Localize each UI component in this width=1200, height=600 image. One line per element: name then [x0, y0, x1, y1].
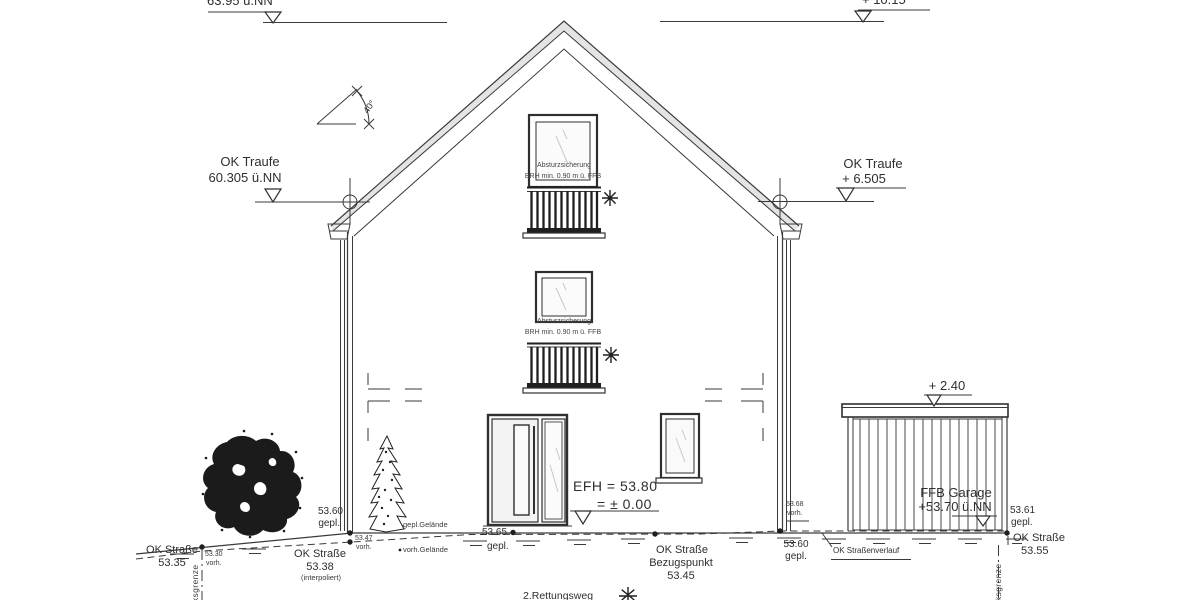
- guard-note-upper-line1: Absturzsicherung: [537, 162, 591, 170]
- street-left-exist-suffix: vorh.: [206, 560, 222, 568]
- property-boundary-label-right: Grundstücksgrenze: [994, 563, 1003, 600]
- street-left-exist-value: 53.30: [205, 551, 223, 559]
- ridge-level-left: 63.95 ü.NN: [207, 0, 273, 8]
- ridge-level-right: + 10.15: [862, 0, 906, 7]
- garage-right-planned-suffix: gepl.: [1011, 517, 1033, 528]
- rescue-route-star-middle: [603, 347, 619, 363]
- garage-ffb-line2: +53.70 ü.NN: [918, 500, 991, 514]
- street-ref-value: 53.45: [667, 570, 695, 582]
- entry-planned-suffix: gepl.: [487, 541, 509, 552]
- rescue-route-star-legend: [619, 587, 637, 600]
- trees: [202, 430, 406, 539]
- street-right-value: 53.55: [1021, 545, 1049, 557]
- level-triangle-eave-left: [265, 189, 281, 202]
- wall-left-planned-suffix: gepl.: [318, 518, 340, 529]
- rescue-route-star-upper: [602, 190, 618, 206]
- efh-zero-label: = ± 0.00: [597, 497, 652, 512]
- ground-lines: [136, 521, 1026, 600]
- entry-door: [483, 415, 572, 526]
- guard-note-middle-line1: Absturzsicherung: [537, 318, 591, 326]
- guard-note-upper-line2: BRH min. 0.90 m ü. FFB: [525, 173, 601, 181]
- street-ref-line2: Bezugspunkt: [649, 557, 713, 569]
- ground-floor-window: [656, 414, 702, 483]
- wall-left-exist-suffix: vorh.: [356, 544, 372, 552]
- eave-left-value: 60.305 ü.NN: [209, 171, 282, 185]
- wall-right-exist-value: 53.68: [786, 501, 804, 509]
- property-boundary-label-left: Grundstücksgrenze: [191, 564, 200, 600]
- conifer: [369, 436, 406, 532]
- level-markers: [208, 10, 997, 526]
- street-course-label: OK Straßenverlauf: [833, 547, 899, 556]
- wall-left-exist-value: 53.47: [355, 535, 373, 543]
- level-triangle-eave-right: [838, 188, 854, 201]
- bush: [203, 436, 301, 536]
- terrain-planned-label: gepl.Gelände: [403, 521, 448, 529]
- balcony-railing-bars: [532, 347, 598, 383]
- street-interp-note: (interpoliert): [301, 574, 341, 582]
- terrain-exist-label: vorh.Gelände: [403, 546, 448, 554]
- eave-right-value: + 6.505: [842, 172, 886, 186]
- level-triangle-garage-ffb: [976, 516, 990, 526]
- wall-right-exist-suffix: vorh.: [787, 510, 803, 518]
- street-ref-title: OK Straße: [656, 544, 708, 556]
- street-interp-value: 53.38: [306, 561, 334, 573]
- efh-level-label: EFH = 53.80: [573, 479, 658, 494]
- level-triangle-ridge-left: [265, 12, 281, 23]
- garage-right-planned-value: 53.61: [1010, 505, 1035, 516]
- elevation-sheet: 63.95 ü.NN + 10.15 OK Traufe 60.305 ü.NN…: [0, 0, 1200, 600]
- street-right-title: OK Straße: [1013, 532, 1065, 544]
- eave-right-title: OK Traufe: [843, 157, 902, 171]
- eave-left-title: OK Traufe: [220, 155, 279, 169]
- street-left-title: OK Straße: [146, 544, 198, 556]
- street-left-value: 53.35: [158, 557, 186, 569]
- balcony-railing-bars: [532, 191, 598, 228]
- street-course-leader: [822, 533, 832, 547]
- level-triangle-efh: [575, 511, 591, 524]
- wall-right-planned-value: 53.60: [783, 539, 808, 550]
- guard-note-middle-line2: BRH min. 0.90 m ü. FFB: [525, 329, 601, 337]
- garage-height-label: + 2.40: [929, 379, 966, 393]
- level-triangle-ridge-right: [855, 11, 871, 22]
- wall-left-planned-value: 53.60: [318, 506, 343, 517]
- wall-right-planned-suffix: gepl.: [785, 551, 807, 562]
- street-interp-title: OK Straße: [294, 548, 346, 560]
- entry-planned-value: 53.65: [482, 527, 507, 538]
- rescue-route-label: 2.Rettungsweg: [523, 591, 593, 600]
